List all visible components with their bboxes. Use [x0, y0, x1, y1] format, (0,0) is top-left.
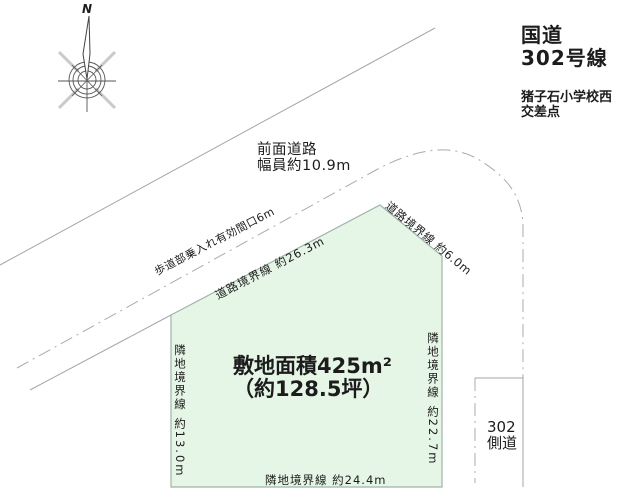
compass-north-label: N	[82, 2, 92, 16]
intersection-label: 猪子石小学校西 交差点	[521, 90, 612, 120]
compass-ray-se	[96, 89, 116, 109]
route-name-line2: 302号線	[521, 47, 608, 70]
plot-area-line1: 敷地面積425m²	[233, 355, 392, 378]
neighbor-boundary-left-label: 隣地境界線 約13.0m	[172, 344, 188, 477]
side-road-line1: 302	[487, 419, 517, 435]
plot-area-label: 敷地面積425m² （約128.5坪）	[233, 355, 392, 401]
plot-area-line2: （約128.5坪）	[233, 378, 392, 401]
side-road-line2: 側道	[487, 435, 517, 451]
route-name-line1: 国道	[521, 24, 608, 47]
route-name-label: 国道 302号線	[521, 24, 608, 70]
compass-needle-icon	[83, 16, 90, 79]
neighbor-boundary-bottom-label: 隣地境界線 約24.4m	[265, 472, 386, 488]
intersection-line2: 交差点	[521, 105, 612, 120]
intersection-line1: 猪子石小学校西	[521, 90, 612, 105]
compass-rose: N	[58, 2, 116, 112]
front-road-line2: 幅員約10.9m	[257, 158, 351, 174]
front-road-line1: 前面道路	[257, 142, 351, 158]
compass-ray-sw	[59, 89, 79, 109]
neighbor-boundary-right-label: 隣地境界線 約22.7m	[425, 332, 441, 465]
front-road-label: 前面道路 幅員約10.9m	[257, 142, 351, 174]
front-road-near-edge-line	[30, 315, 171, 390]
side-road-label: 302 側道	[487, 419, 517, 451]
site-plan: N 国道 302号線 猪子石小学校西 交差点 前面道路 幅員約10.9m 歩道部…	[0, 0, 631, 500]
